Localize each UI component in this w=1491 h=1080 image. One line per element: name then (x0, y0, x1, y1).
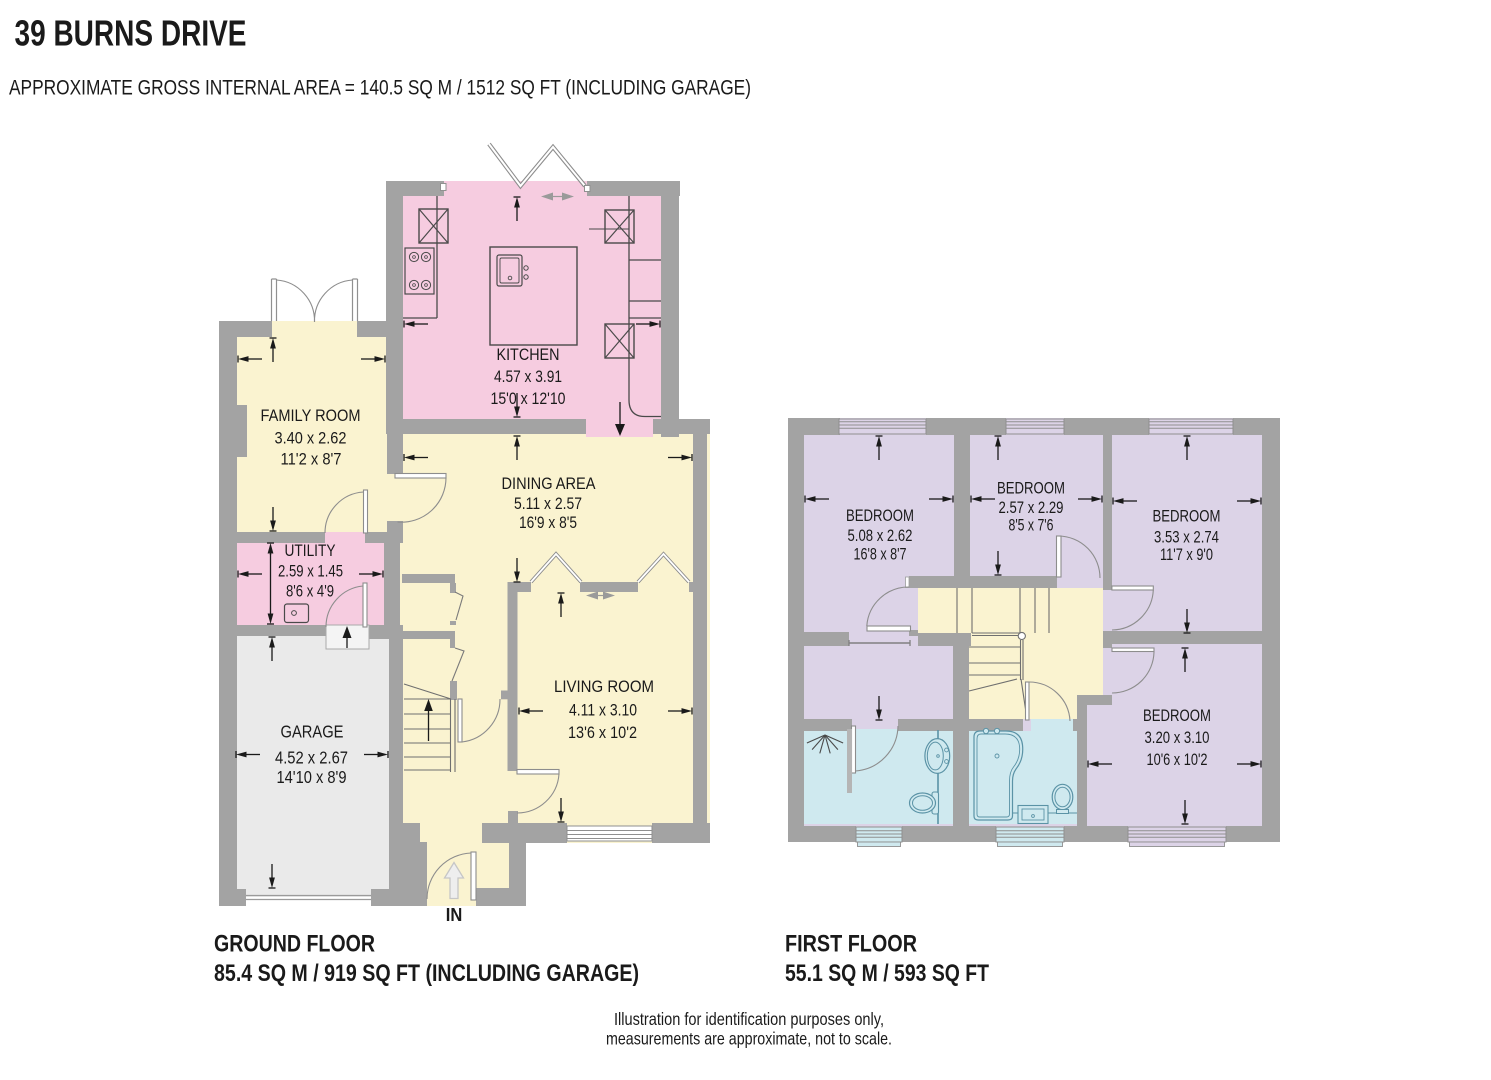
svg-text:FAMILY ROOM: FAMILY ROOM (261, 406, 361, 425)
svg-text:16'9 x 8'5: 16'9 x 8'5 (519, 514, 577, 532)
svg-text:KITCHEN: KITCHEN (497, 346, 560, 364)
svg-text:39 BURNS DRIVE: 39 BURNS DRIVE (15, 13, 247, 54)
svg-text:4.52 x 2.67: 4.52 x 2.67 (275, 748, 348, 768)
svg-text:2.59 x 1.45: 2.59 x 1.45 (278, 562, 343, 581)
svg-text:3.20 x 3.10: 3.20 x 3.10 (1145, 729, 1210, 747)
svg-text:10'6 x 10'2: 10'6 x 10'2 (1147, 751, 1208, 769)
svg-text:FIRST FLOOR: FIRST FLOOR (785, 931, 917, 958)
svg-text:55.1 SQ M / 593 SQ FT: 55.1 SQ M / 593 SQ FT (785, 960, 989, 987)
svg-text:11'7 x 9'0: 11'7 x 9'0 (1160, 546, 1213, 564)
svg-text:8'5 x 7'6: 8'5 x 7'6 (1009, 517, 1054, 535)
svg-text:Illustration for identificatio: Illustration for identification purposes… (614, 1009, 884, 1029)
svg-text:APPROXIMATE GROSS INTERNAL ARE: APPROXIMATE GROSS INTERNAL AREA = 140.5 … (9, 77, 751, 100)
svg-text:BEDROOM: BEDROOM (1153, 508, 1221, 526)
svg-text:14'10 x 8'9: 14'10 x 8'9 (277, 767, 347, 787)
svg-text:5.08 x 2.62: 5.08 x 2.62 (848, 527, 913, 545)
svg-text:11'2 x 8'7: 11'2 x 8'7 (281, 450, 342, 469)
svg-text:LIVING ROOM: LIVING ROOM (554, 678, 654, 696)
svg-text:BEDROOM: BEDROOM (846, 507, 914, 525)
svg-text:BEDROOM: BEDROOM (997, 480, 1065, 498)
svg-text:8'6 x 4'9: 8'6 x 4'9 (286, 582, 334, 601)
svg-text:2.57 x 2.29: 2.57 x 2.29 (999, 499, 1064, 517)
svg-text:3.40 x 2.62: 3.40 x 2.62 (275, 429, 347, 448)
svg-text:85.4 SQ M / 919 SQ FT (INCLUDI: 85.4 SQ M / 919 SQ FT (INCLUDING GARAGE) (214, 960, 639, 987)
svg-text:IN: IN (446, 905, 463, 925)
svg-text:4.57 x 3.91: 4.57 x 3.91 (494, 368, 562, 386)
svg-text:GARAGE: GARAGE (281, 722, 344, 742)
svg-text:13'6 x 10'2: 13'6 x 10'2 (568, 724, 637, 742)
svg-text:BEDROOM: BEDROOM (1143, 707, 1211, 725)
svg-text:5.11 x 2.57: 5.11 x 2.57 (514, 495, 582, 513)
svg-text:4.11 x 3.10: 4.11 x 3.10 (569, 702, 637, 720)
svg-text:16'8 x 8'7: 16'8 x 8'7 (854, 546, 907, 564)
svg-text:UTILITY: UTILITY (285, 541, 336, 560)
svg-text:measurements are approximate,: measurements are approximate, not to sca… (606, 1029, 892, 1049)
svg-text:3.53 x 2.74: 3.53 x 2.74 (1154, 529, 1219, 547)
svg-text:DINING AREA: DINING AREA (502, 475, 596, 493)
svg-text:GROUND FLOOR: GROUND FLOOR (214, 931, 375, 958)
svg-text:15'0 x 12'10: 15'0 x 12'10 (491, 390, 566, 408)
